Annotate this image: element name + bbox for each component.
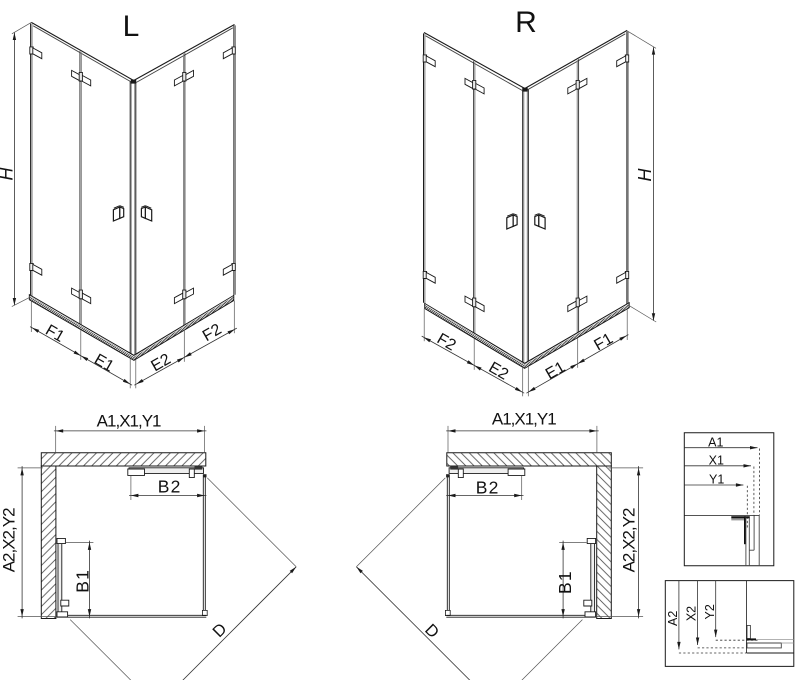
svg-text:A1,X1,Y1: A1,X1,Y1: [492, 410, 556, 429]
svg-text:H: H: [0, 167, 17, 181]
svg-text:B2: B2: [476, 478, 500, 498]
svg-text:A1: A1: [708, 435, 723, 449]
svg-text:B1: B1: [555, 570, 575, 594]
svg-text:A1,X1,Y1: A1,X1,Y1: [97, 411, 161, 430]
svg-text:R: R: [515, 6, 537, 39]
svg-text:Y1: Y1: [709, 473, 724, 487]
svg-text:X2: X2: [685, 606, 699, 621]
svg-text:B2: B2: [158, 477, 182, 497]
svg-text:A2: A2: [666, 611, 680, 626]
svg-text:B1: B1: [73, 569, 93, 593]
svg-text:X1: X1: [709, 453, 724, 467]
svg-text:H: H: [635, 168, 655, 182]
svg-text:A2,X2,Y2: A2,X2,Y2: [0, 508, 19, 572]
svg-text:Y2: Y2: [703, 604, 717, 619]
svg-text:A2,X2,Y2: A2,X2,Y2: [619, 508, 638, 572]
svg-text:L: L: [123, 10, 140, 43]
